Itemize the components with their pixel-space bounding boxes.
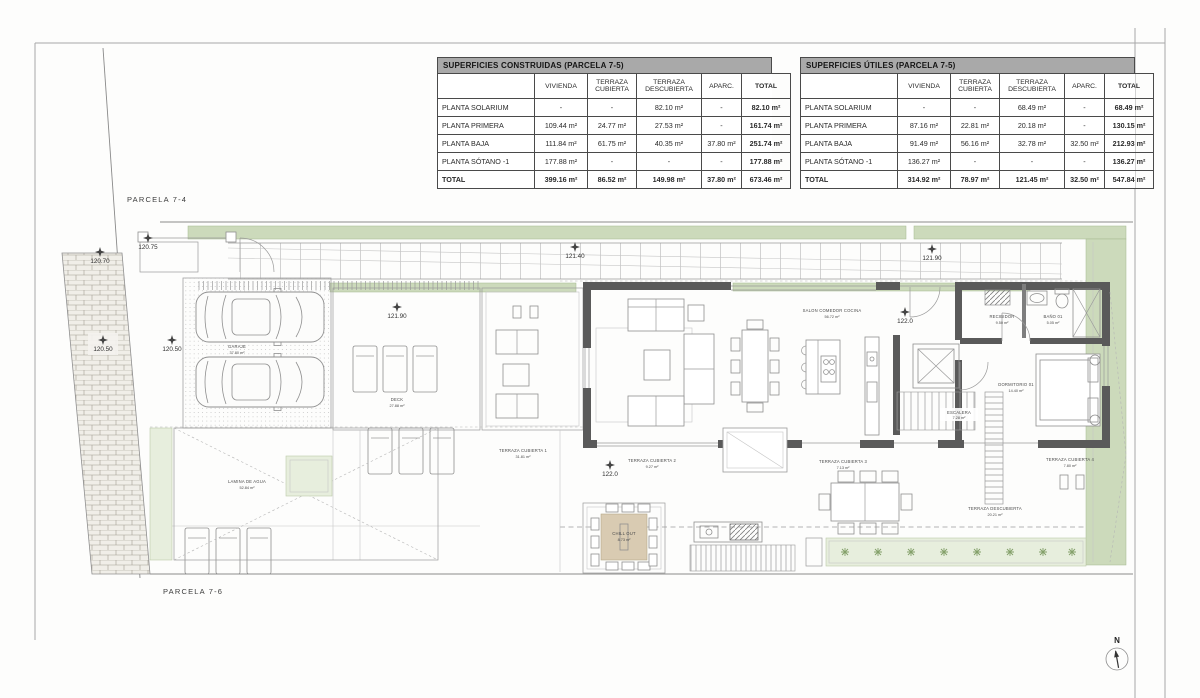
table-cell: - bbox=[702, 117, 742, 135]
table-cell: PLANTA SOLARIUM bbox=[801, 99, 898, 117]
table-cell: 78.97 m² bbox=[951, 171, 1000, 189]
parcel-label-top: PARCELA 7-4 bbox=[127, 195, 187, 204]
room-label-salon: SALON COMEDOR COCINA bbox=[803, 308, 862, 313]
post bbox=[1060, 475, 1068, 489]
drawing-sheet: SALON COMEDOR COCINA 56.72 m² GARAJE 37.… bbox=[0, 0, 1200, 698]
parcel-label-bottom: PARCELA 7-6 bbox=[163, 587, 223, 596]
sun-lounger bbox=[430, 428, 454, 474]
table-cell: PLANTA BAJA bbox=[438, 135, 535, 153]
table-cell: 22.81 m² bbox=[951, 117, 1000, 135]
table-cell: 149.98 m² bbox=[637, 171, 702, 189]
svg-text:7.80 m²: 7.80 m² bbox=[1064, 464, 1078, 468]
column-header: APARC. bbox=[702, 74, 742, 99]
column-header: TOTAL bbox=[1105, 74, 1154, 99]
column-header: TERRAZA DESCUBIERTA bbox=[637, 74, 702, 99]
column-header bbox=[438, 74, 535, 99]
table-cell: - bbox=[535, 99, 588, 117]
svg-text:121.90: 121.90 bbox=[387, 313, 407, 320]
table-cell: 82.10 m² bbox=[742, 99, 791, 117]
table-cell: PLANTA BAJA bbox=[801, 135, 898, 153]
elevation-marker: 122.0 bbox=[897, 307, 913, 325]
table-cell: - bbox=[1065, 117, 1105, 135]
table-cell: - bbox=[1000, 153, 1065, 171]
table-cell: PLANTA PRIMERA bbox=[438, 117, 535, 135]
drain-grate bbox=[690, 545, 795, 571]
table-cell: - bbox=[702, 153, 742, 171]
room-label-terraza3: TERRAZA CUBIERTA 3 bbox=[819, 459, 868, 464]
north-arrow: N bbox=[1106, 636, 1128, 670]
room-label-terraza2: TERRAZA CUBIERTA 2 bbox=[628, 458, 677, 463]
table-superficies-construidas: SUPERFICIES CONSTRUIDAS (PARCELA 7-5) VI… bbox=[437, 57, 772, 189]
sun-lounger bbox=[216, 528, 240, 574]
covered-terrace-1 bbox=[482, 288, 583, 430]
room-label-escalera: ESCALERA bbox=[947, 410, 971, 415]
svg-text:121.90: 121.90 bbox=[922, 255, 942, 262]
table-cell: 56.16 m² bbox=[951, 135, 1000, 153]
column-header: TERRAZA CUBIERTA bbox=[588, 74, 637, 99]
svg-text:5.05 m²: 5.05 m² bbox=[1047, 321, 1061, 325]
svg-text:27.88 m²: 27.88 m² bbox=[390, 404, 406, 408]
svg-text:8.73 m²: 8.73 m² bbox=[618, 538, 632, 542]
table-row: TOTAL314.92 m²78.97 m²121.45 m²32.50 m²5… bbox=[801, 171, 1154, 189]
living-room bbox=[596, 299, 714, 426]
table-row: PLANTA PRIMERA109.44 m²24.77 m²27.53 m²-… bbox=[438, 117, 791, 135]
room-label-chillout: CHILL OUT bbox=[612, 531, 636, 536]
table-cell: 177.88 m² bbox=[742, 153, 791, 171]
svg-text:31.81 m²: 31.81 m² bbox=[516, 455, 532, 459]
bbq-sink bbox=[700, 526, 718, 538]
room-label-garaje: GARAJE bbox=[228, 344, 246, 349]
coffee-table bbox=[503, 364, 529, 386]
room-label-lamina: LAMINA DE AGUA bbox=[228, 479, 266, 484]
table-title: SUPERFICIES CONSTRUIDAS (PARCELA 7-5) bbox=[437, 57, 772, 73]
bbq-grill bbox=[730, 524, 758, 540]
room-label-terraza-descubierta: TERRAZA DESCUBIERTA bbox=[968, 506, 1022, 511]
column-header bbox=[801, 74, 898, 99]
bed bbox=[1036, 354, 1100, 426]
sun-lounger bbox=[368, 428, 392, 474]
svg-text:120.50: 120.50 bbox=[162, 346, 182, 353]
garage bbox=[183, 278, 331, 428]
table-cell: 27.53 m² bbox=[637, 117, 702, 135]
outdoor-dining bbox=[819, 471, 912, 534]
side-table bbox=[688, 305, 704, 321]
room-label-deck: DECK bbox=[391, 397, 403, 402]
post bbox=[1076, 475, 1084, 489]
kitchen bbox=[802, 337, 880, 435]
table-cell: 37.80 m² bbox=[702, 171, 742, 189]
water-feature bbox=[150, 427, 583, 560]
table-cell: 32.50 m² bbox=[1065, 171, 1105, 189]
table-cell: 161.74 m² bbox=[742, 117, 791, 135]
table-cell: 136.27 m² bbox=[898, 153, 951, 171]
table-cell: 136.27 m² bbox=[1105, 153, 1154, 171]
stone-wall bbox=[62, 253, 150, 574]
table-row: PLANTA SÓTANO -1177.88 m²---177.88 m² bbox=[438, 153, 791, 171]
svg-text:122.0: 122.0 bbox=[602, 471, 618, 478]
room-label-recibidor: RECIBIDOR bbox=[989, 314, 1014, 319]
column-header: TERRAZA DESCUBIERTA bbox=[1000, 74, 1065, 99]
column-header: APARC. bbox=[1065, 74, 1105, 99]
table-cell: PLANTA PRIMERA bbox=[801, 117, 898, 135]
table-cell: - bbox=[1065, 153, 1105, 171]
svg-text:52.84 m²: 52.84 m² bbox=[240, 486, 256, 490]
table-cell: - bbox=[1065, 99, 1105, 117]
table-cell: 32.78 m² bbox=[1000, 135, 1065, 153]
svg-text:37.80 m²: 37.80 m² bbox=[230, 351, 246, 355]
table-cell: 40.35 m² bbox=[637, 135, 702, 153]
table-cell: 86.52 m² bbox=[588, 171, 637, 189]
table-cell: PLANTA SOLARIUM bbox=[438, 99, 535, 117]
sun-lounger bbox=[247, 528, 271, 574]
table-row: PLANTA BAJA91.49 m²56.16 m²32.78 m²32.50… bbox=[801, 135, 1154, 153]
svg-text:14.40 m²: 14.40 m² bbox=[1009, 389, 1025, 393]
svg-text:9.50 m²: 9.50 m² bbox=[996, 321, 1010, 325]
table-cell: PLANTA SÓTANO -1 bbox=[438, 153, 535, 171]
dining-table bbox=[742, 330, 768, 402]
table-cell: - bbox=[588, 99, 637, 117]
column-header: VIVIENDA bbox=[898, 74, 951, 99]
chillout-table bbox=[601, 514, 647, 560]
sun-lounger bbox=[399, 428, 423, 474]
table-cell: 68.49 m² bbox=[1105, 99, 1154, 117]
coffee-table bbox=[644, 350, 670, 380]
planted-bed bbox=[806, 538, 1086, 566]
table-cell: 91.49 m² bbox=[898, 135, 951, 153]
svg-text:122.0: 122.0 bbox=[897, 318, 913, 325]
svg-text:56.72 m²: 56.72 m² bbox=[825, 315, 841, 319]
sun-lounger bbox=[383, 346, 407, 392]
table-cell: 314.92 m² bbox=[898, 171, 951, 189]
table-row: PLANTA BAJA111.84 m²61.75 m²40.35 m²37.8… bbox=[438, 135, 791, 153]
table-cell: TOTAL bbox=[801, 171, 898, 189]
table-cell: 37.80 m² bbox=[702, 135, 742, 153]
car bbox=[196, 289, 324, 346]
dining-area bbox=[731, 320, 779, 412]
south-terraces bbox=[560, 428, 1086, 573]
svg-text:120.75: 120.75 bbox=[138, 244, 158, 251]
room-label-terraza4: TERRAZA CUBIERTA 4 bbox=[1046, 457, 1095, 462]
room-label-terraza1: TERRAZA CUBIERTA 1 bbox=[499, 448, 548, 453]
table-cell: 251.74 m² bbox=[742, 135, 791, 153]
table-cell: 399.16 m² bbox=[535, 171, 588, 189]
elevation-marker: 120.50 bbox=[88, 333, 118, 355]
table-row: PLANTA SOLARIUM--68.49 m²-68.49 m² bbox=[801, 99, 1154, 117]
table-cell: - bbox=[951, 99, 1000, 117]
column-header: VIVIENDA bbox=[535, 74, 588, 99]
svg-text:7.13 m²: 7.13 m² bbox=[837, 466, 851, 470]
svg-text:9.27 m²: 9.27 m² bbox=[646, 465, 660, 469]
table-cell: 547.84 m² bbox=[1105, 171, 1154, 189]
planter-box bbox=[286, 456, 332, 496]
table-cell: 121.45 m² bbox=[1000, 171, 1065, 189]
table-cell: 130.15 m² bbox=[1105, 117, 1154, 135]
svg-text:20.21 m²: 20.21 m² bbox=[988, 513, 1004, 517]
table-cell: - bbox=[637, 153, 702, 171]
table-row: PLANTA SÓTANO -1136.27 m²---136.27 m² bbox=[801, 153, 1154, 171]
table-title: SUPERFICIES ÚTILES (PARCELA 7-5) bbox=[800, 57, 1135, 73]
table-cell: PLANTA SÓTANO -1 bbox=[801, 153, 898, 171]
svg-text:7.28 m²: 7.28 m² bbox=[953, 416, 967, 420]
table-cell: 109.44 m² bbox=[535, 117, 588, 135]
table-row: PLANTA PRIMERA87.16 m²22.81 m²20.18 m²-1… bbox=[801, 117, 1154, 135]
table-cell: TOTAL bbox=[438, 171, 535, 189]
column-header: TOTAL bbox=[742, 74, 791, 99]
room-label-dormitorio: DORMITORIO 01 bbox=[998, 382, 1034, 387]
table-cell: 82.10 m² bbox=[637, 99, 702, 117]
construidas-table: VIVIENDATERRAZA CUBIERTATERRAZA DESCUBIE… bbox=[437, 73, 791, 189]
table-cell: - bbox=[702, 99, 742, 117]
table-cell: 61.75 m² bbox=[588, 135, 637, 153]
room-label-bano: BAÑO 01 bbox=[1043, 314, 1063, 319]
table-cell: - bbox=[951, 153, 1000, 171]
car bbox=[196, 354, 324, 411]
table-cell: 24.77 m² bbox=[588, 117, 637, 135]
svg-text:120.70: 120.70 bbox=[90, 258, 110, 265]
hall-closet bbox=[985, 290, 1010, 305]
column-header: TERRAZA CUBIERTA bbox=[951, 74, 1000, 99]
table-cell: - bbox=[588, 153, 637, 171]
svg-text:121.40: 121.40 bbox=[565, 253, 585, 260]
table-row: TOTAL399.16 m²86.52 m²149.98 m²37.80 m²6… bbox=[438, 171, 791, 189]
stool bbox=[530, 306, 538, 318]
table-row: PLANTA SOLARIUM--82.10 m²-82.10 m² bbox=[438, 99, 791, 117]
sun-lounger bbox=[185, 528, 209, 574]
table-cell: 68.49 m² bbox=[1000, 99, 1065, 117]
elevation-marker: 122.0 bbox=[602, 460, 618, 478]
table-cell: 212.93 m² bbox=[1105, 135, 1154, 153]
elevation-marker: 121.90 bbox=[387, 302, 407, 320]
north-label: N bbox=[1114, 636, 1120, 645]
bbq-counter bbox=[694, 522, 762, 542]
wardrobe bbox=[985, 392, 1003, 504]
table-cell: 673.46 m² bbox=[742, 171, 791, 189]
elevation-marker: 120.50 bbox=[162, 335, 182, 353]
table-superficies-utiles: SUPERFICIES ÚTILES (PARCELA 7-5) VIVIEND… bbox=[800, 57, 1135, 189]
svg-text:120.50: 120.50 bbox=[93, 346, 113, 353]
table-cell: - bbox=[898, 99, 951, 117]
table-cell: 111.84 m² bbox=[535, 135, 588, 153]
utiles-table: VIVIENDATERRAZA CUBIERTATERRAZA DESCUBIE… bbox=[800, 73, 1154, 189]
table-cell: 32.50 m² bbox=[1065, 135, 1105, 153]
table-cell: 20.18 m² bbox=[1000, 117, 1065, 135]
sun-lounger bbox=[353, 346, 377, 392]
table-cell: 177.88 m² bbox=[535, 153, 588, 171]
stool bbox=[513, 306, 521, 318]
table-cell: 87.16 m² bbox=[898, 117, 951, 135]
stairs bbox=[897, 344, 978, 430]
kitchen-island bbox=[806, 340, 840, 394]
sun-lounger bbox=[413, 346, 437, 392]
